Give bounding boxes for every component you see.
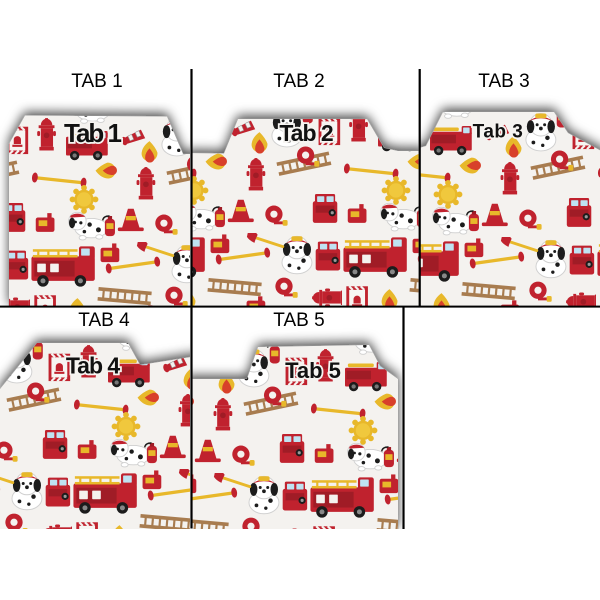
svg-text:Tab 1: Tab 1 <box>64 118 122 148</box>
svg-text:Tab 2: Tab 2 <box>279 120 333 146</box>
svg-text:Tab 3: Tab 3 <box>473 122 524 143</box>
svg-text:Tab 5: Tab 5 <box>285 358 341 383</box>
svg-text:TAB 5: TAB 5 <box>273 310 324 331</box>
svg-text:Tab 4: Tab 4 <box>66 353 121 379</box>
svg-text:TAB 4: TAB 4 <box>78 310 130 331</box>
svg-text:TAB 3: TAB 3 <box>478 71 529 92</box>
svg-text:TAB 1: TAB 1 <box>71 71 122 92</box>
svg-text:TAB 2: TAB 2 <box>273 71 324 92</box>
